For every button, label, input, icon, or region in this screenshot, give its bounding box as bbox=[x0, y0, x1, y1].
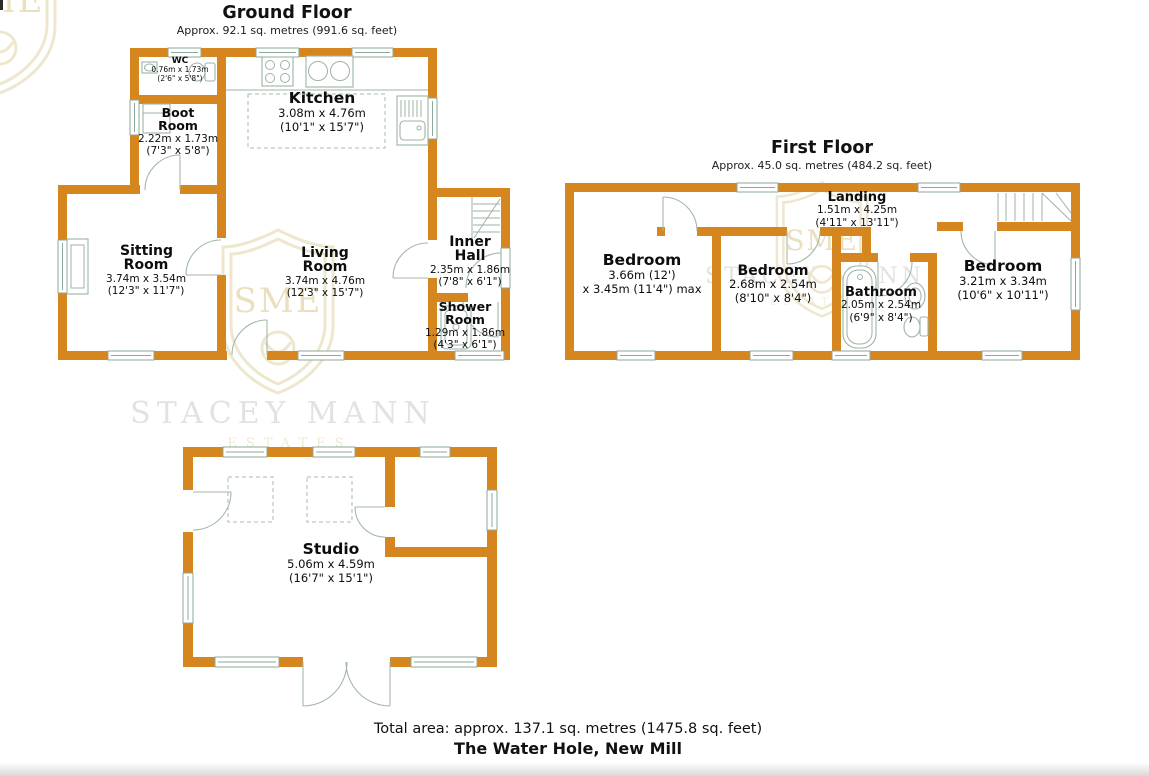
studio-fixtures bbox=[228, 477, 352, 522]
room-name: Shower Room bbox=[436, 301, 494, 327]
bottom-fade bbox=[0, 763, 1149, 776]
double-sink-icon bbox=[306, 56, 353, 87]
first-floor-title: First Floor bbox=[712, 139, 932, 157]
room-name: Boot Room bbox=[155, 107, 201, 133]
room-label-kitchen: Kitchen 3.08m x 4.76m (10'1" x 15'7") bbox=[278, 91, 366, 134]
rooflight-dashed-1 bbox=[228, 477, 273, 522]
room-dim-imperial: (10'1" x 15'7") bbox=[278, 121, 366, 135]
fireplace-icon bbox=[67, 239, 88, 294]
crest-monogram: SME bbox=[0, 0, 44, 21]
sink-bowl-icon bbox=[400, 121, 425, 140]
room-dim-metric: 5.06m x 4.59m bbox=[287, 558, 375, 572]
room-dim-imperial: x 3.45m (11'4") max bbox=[582, 283, 701, 297]
room-name: Inner Hall bbox=[447, 235, 493, 264]
room-dim-imperial: (2'6" x 5'8") bbox=[151, 75, 208, 84]
room-label-sitting-room: Sitting Room 3.74m x 3.54m (12'3" x 11'7… bbox=[106, 244, 186, 298]
room-label-landing: Landing 1.51m x 4.25m (4'11" x 13'11") bbox=[815, 191, 898, 229]
room-dim-imperial: (16'7" x 15'1") bbox=[287, 572, 375, 586]
room-dim-metric: 3.21m x 3.34m bbox=[957, 275, 1048, 289]
first-floor-title-block: First Floor Approx. 45.0 sq. metres (484… bbox=[712, 139, 932, 172]
room-label-shower-room: Shower Room 1.29m x 1.86m (4'3" x 6'1") bbox=[425, 301, 505, 352]
room-name: Living Room bbox=[300, 246, 350, 275]
room-name: Bedroom bbox=[582, 253, 701, 269]
room-name: Kitchen bbox=[278, 91, 366, 107]
room-dim-metric: 2.05m x 2.54m bbox=[841, 299, 921, 311]
room-label-bathroom: Bathroom 2.05m x 2.54m (6'9" x 8'4") bbox=[841, 286, 921, 324]
room-dim-metric: 1.29m x 1.86m bbox=[425, 327, 505, 339]
ground-floor-subtitle: Approx. 92.1 sq. metres (991.6 sq. feet) bbox=[177, 24, 397, 37]
room-dim-metric: 2.68m x 2.54m bbox=[729, 278, 817, 292]
room-label-studio: Studio 5.06m x 4.59m (16'7" x 15'1") bbox=[287, 542, 375, 585]
watermark-agency-name: STACEY MANN bbox=[130, 396, 436, 431]
room-dim-metric: 3.74m x 4.76m bbox=[285, 275, 365, 287]
room-label-inner-hall: Inner Hall 2.35m x 1.86m (7'8" x 6'1") bbox=[430, 235, 510, 289]
ground-floor-title: Ground Floor bbox=[177, 4, 397, 22]
room-name: Sitting Room bbox=[120, 244, 172, 273]
first-floor-subtitle: Approx. 45.0 sq. metres (484.2 sq. feet) bbox=[712, 159, 932, 172]
room-dim-imperial: (4'11" x 13'11") bbox=[815, 217, 898, 229]
footer-block: Total area: approx. 137.1 sq. metres (14… bbox=[374, 721, 762, 758]
room-dim-imperial: (4'3" x 6'1") bbox=[425, 339, 505, 351]
room-dim-metric: 3.74m x 3.54m bbox=[106, 273, 186, 285]
room-name: Landing bbox=[815, 191, 898, 204]
rooflight-dashed-2 bbox=[307, 477, 352, 522]
room-dim-metric: 2.35m x 1.86m bbox=[430, 264, 510, 276]
room-name: Studio bbox=[287, 542, 375, 558]
room-dim-imperial: (6'9" x 8'4") bbox=[841, 312, 921, 324]
room-name: Bathroom bbox=[841, 286, 921, 299]
property-address: The Water Hole, New Mill bbox=[374, 739, 762, 758]
room-name: Bedroom bbox=[729, 264, 817, 278]
room-dim-imperial: (8'10" x 8'4") bbox=[729, 292, 817, 306]
room-dim-metric: 3.08m x 4.76m bbox=[278, 107, 366, 121]
room-dim-imperial: (7'8" x 6'1") bbox=[430, 276, 510, 288]
scan-artifact bbox=[0, 0, 3, 10]
studio-doors bbox=[193, 492, 390, 706]
room-label-boot-room: Boot Room 2.22m x 1.73m (7'3" x 5'8") bbox=[138, 107, 218, 158]
room-dim-imperial: (12'3" x 15'7") bbox=[285, 287, 365, 299]
room-label-bedroom-1: Bedroom 3.66m (12') x 3.45m (11'4") max bbox=[582, 253, 701, 296]
room-label-living-room: Living Room 3.74m x 4.76m (12'3" x 15'7"… bbox=[285, 246, 365, 300]
room-name: Bedroom bbox=[957, 259, 1048, 275]
total-area-text: Total area: approx. 137.1 sq. metres (14… bbox=[374, 721, 762, 737]
room-label-wc: WC 0.76m x 1.73m (2'6" x 5'8") bbox=[151, 57, 208, 84]
room-dim-metric: 3.66m (12') bbox=[582, 269, 701, 283]
room-label-bedroom-3: Bedroom 3.21m x 3.34m (10'6" x 10'11") bbox=[957, 259, 1048, 302]
room-dim-imperial: (10'6" x 10'11") bbox=[957, 289, 1048, 303]
room-dim-imperial: (7'3" x 5'8") bbox=[138, 145, 218, 157]
room-dim-imperial: (12'3" x 11'7") bbox=[106, 285, 186, 297]
room-label-bedroom-2: Bedroom 2.68m x 2.54m (8'10" x 8'4") bbox=[729, 264, 817, 306]
ground-floor-title-block: Ground Floor Approx. 92.1 sq. metres (99… bbox=[177, 4, 397, 37]
crest-watermark-icon: SME bbox=[0, 0, 55, 93]
first-stairs bbox=[998, 193, 1071, 221]
room-dim-metric: 2.22m x 1.73m bbox=[138, 133, 218, 145]
floorplan-page: STACEY MANN ESTATES STACEY MANN ESTATES … bbox=[0, 0, 1149, 776]
room-dim-metric: 1.51m x 4.25m bbox=[815, 204, 898, 216]
toilet-cistern-icon bbox=[920, 317, 928, 336]
